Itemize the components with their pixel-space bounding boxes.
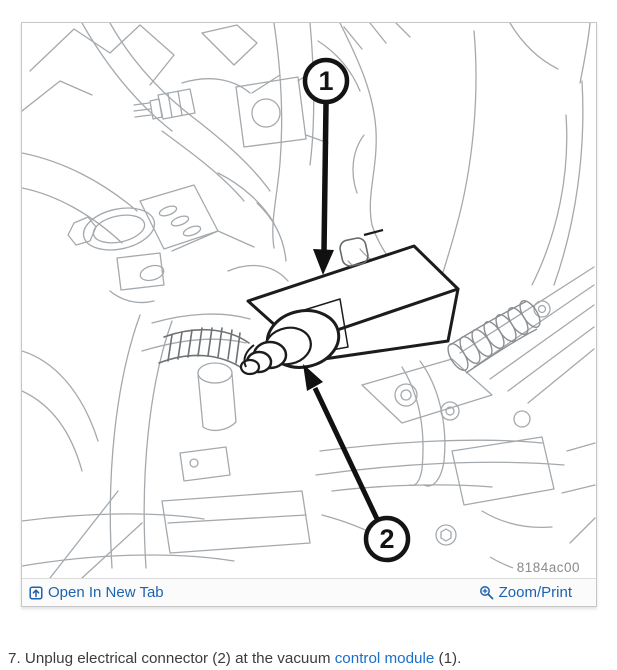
callout-arrow-2 [303,364,378,521]
open-in-new-tab-link[interactable]: Open In New Tab [29,585,164,600]
callout-1-number: 1 [318,66,333,96]
battery-terminal [68,185,218,303]
figure-code-text: 8184ac00 [517,560,580,575]
zoom-print-label: Zoom/Print [499,585,572,600]
callout-arrow-1 [313,104,334,275]
callout-2-number: 2 [379,524,394,554]
control-module-link[interactable]: control module [335,650,435,667]
callout-2: 2 [366,518,408,560]
open-in-new-tab-label: Open In New Tab [48,585,164,600]
step-instruction: 7. Unplug electrical connector (2) at th… [8,649,608,670]
zoom-print-icon [479,585,494,600]
figure-toolbar: Open In New Tab Zoom/Print [22,578,596,606]
zoom-print-link[interactable]: Zoom/Print [479,585,572,600]
open-in-new-tab-icon [29,586,43,600]
step-text-after: (1). [434,650,461,667]
callout-1: 1 [305,60,347,102]
figure-code: 8184ac00 [490,557,580,575]
engine-bay-illustration: 1 2 8184ac00 [22,23,596,578]
step-text-before: 7. Unplug electrical connector (2) at th… [8,650,335,667]
figure-panel: 1 2 8184ac00 Open In New Tab [21,22,597,607]
engine-diagram: 1 2 8184ac00 [22,23,596,578]
wiring-harness [159,328,249,371]
